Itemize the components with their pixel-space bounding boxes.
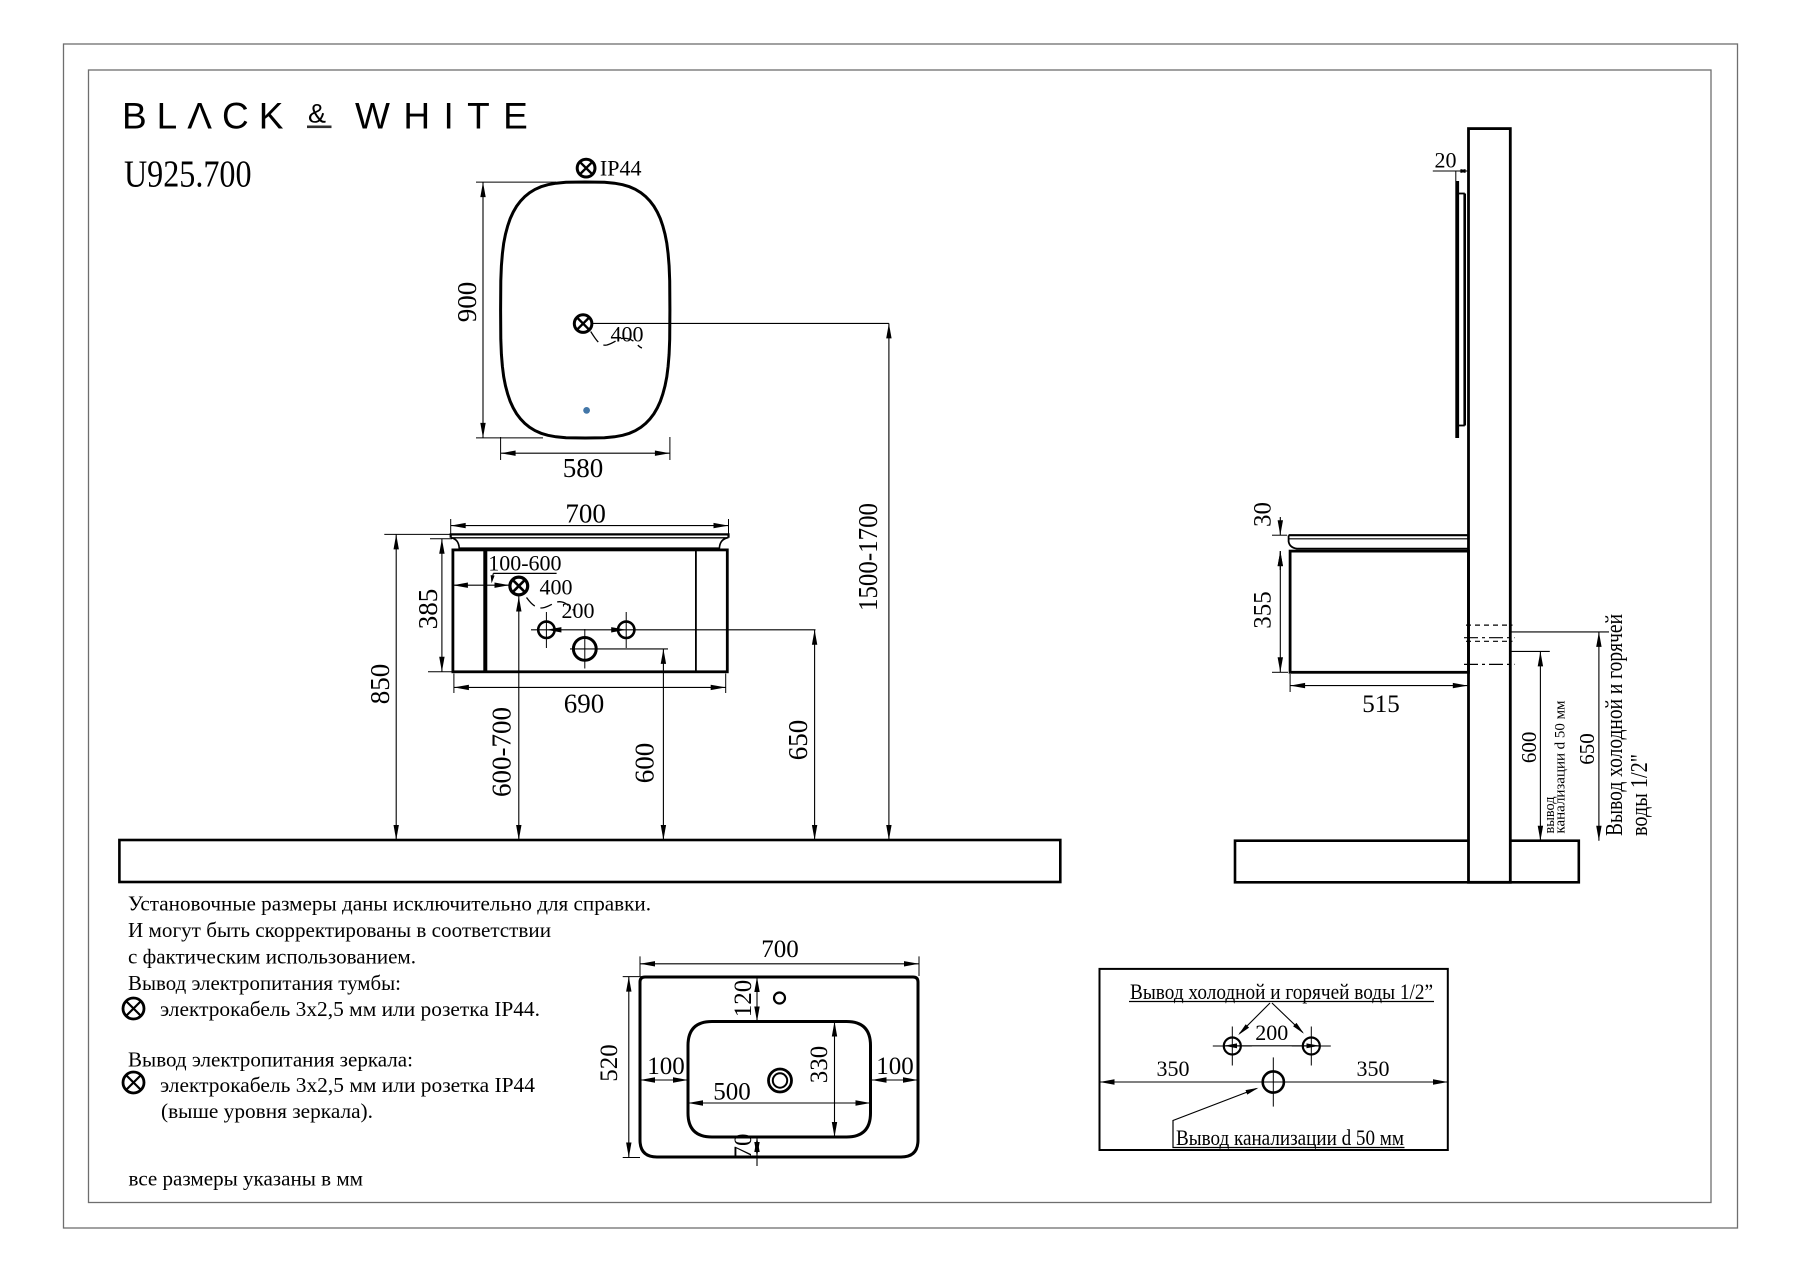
svg-text:Вывод электропитания тумбы:: Вывод электропитания тумбы: (128, 971, 401, 995)
svg-text:BLΛCK: BLΛCK (122, 96, 293, 137)
svg-text:100-600: 100-600 (488, 551, 561, 576)
svg-text:с фактическим использованием.: с фактическим использованием. (128, 945, 416, 969)
svg-text:400: 400 (540, 575, 573, 600)
svg-text:Вывод канализации d 50 мм: Вывод канализации d 50 мм (1176, 1125, 1404, 1150)
svg-text:350: 350 (1357, 1056, 1390, 1081)
svg-text:(выше уровня зеркала).: (выше уровня зеркала). (161, 1099, 373, 1123)
svg-text:580: 580 (563, 453, 604, 483)
svg-text:U925.700: U925.700 (124, 154, 252, 196)
svg-text:И могут быть скорректированы в: И могут быть скорректированы в соответст… (128, 918, 551, 942)
svg-text:электрокабель 3х2,5 мм или роз: электрокабель 3х2,5 мм или розетка IP44 (160, 1073, 535, 1097)
svg-text:WHITE: WHITE (355, 96, 541, 137)
svg-text:600: 600 (630, 743, 660, 784)
svg-text:850: 850 (365, 664, 395, 705)
svg-text:электрокабель 3х2,5 мм или роз: электрокабель 3х2,5 мм или розетка IP44. (160, 997, 540, 1021)
svg-text:400: 400 (611, 321, 644, 346)
svg-text:650: 650 (1575, 733, 1599, 765)
svg-text:Вывод холодной и горячей воды: Вывод холодной и горячей воды 1/2” (1130, 979, 1433, 1004)
svg-text:&: & (308, 99, 326, 129)
svg-text:690: 690 (564, 689, 605, 719)
svg-text:600: 600 (1517, 732, 1541, 764)
svg-text:IP44: IP44 (600, 156, 642, 181)
svg-text:100: 100 (647, 1053, 685, 1080)
svg-text:700: 700 (565, 499, 606, 529)
svg-text:1500-1700: 1500-1700 (853, 503, 883, 611)
svg-text:500: 500 (713, 1079, 751, 1106)
svg-text:120: 120 (730, 980, 757, 1018)
svg-text:70: 70 (730, 1134, 757, 1159)
svg-text:520: 520 (596, 1044, 623, 1082)
svg-text:20: 20 (1435, 148, 1457, 173)
svg-text:Вывод холодной и горячей: Вывод холодной и горячей (1602, 614, 1628, 836)
svg-text:385: 385 (413, 589, 443, 630)
svg-text:700: 700 (761, 936, 799, 963)
svg-text:200: 200 (562, 598, 595, 623)
svg-text:100: 100 (876, 1053, 914, 1080)
svg-text:900: 900 (452, 282, 482, 323)
svg-text:330: 330 (806, 1046, 833, 1084)
svg-text:355: 355 (1250, 591, 1277, 629)
svg-text:200: 200 (1255, 1020, 1288, 1045)
svg-text:515: 515 (1362, 691, 1400, 718)
svg-text:Установочные размеры даны искл: Установочные размеры даны исключительно … (128, 892, 651, 916)
svg-text:600-700: 600-700 (486, 707, 516, 797)
svg-text:воды 1/2": воды 1/2" (1627, 754, 1653, 836)
svg-text:Вывод электропитания зеркала:: Вывод электропитания зеркала: (128, 1048, 413, 1072)
svg-text:350: 350 (1157, 1056, 1190, 1081)
svg-text:650: 650 (783, 720, 813, 761)
svg-text:30: 30 (1250, 502, 1277, 527)
svg-text:канализации d 50 мм: канализации d 50 мм (1553, 701, 1569, 834)
svg-text:все размеры указаны в мм: все размеры указаны в мм (129, 1166, 364, 1190)
